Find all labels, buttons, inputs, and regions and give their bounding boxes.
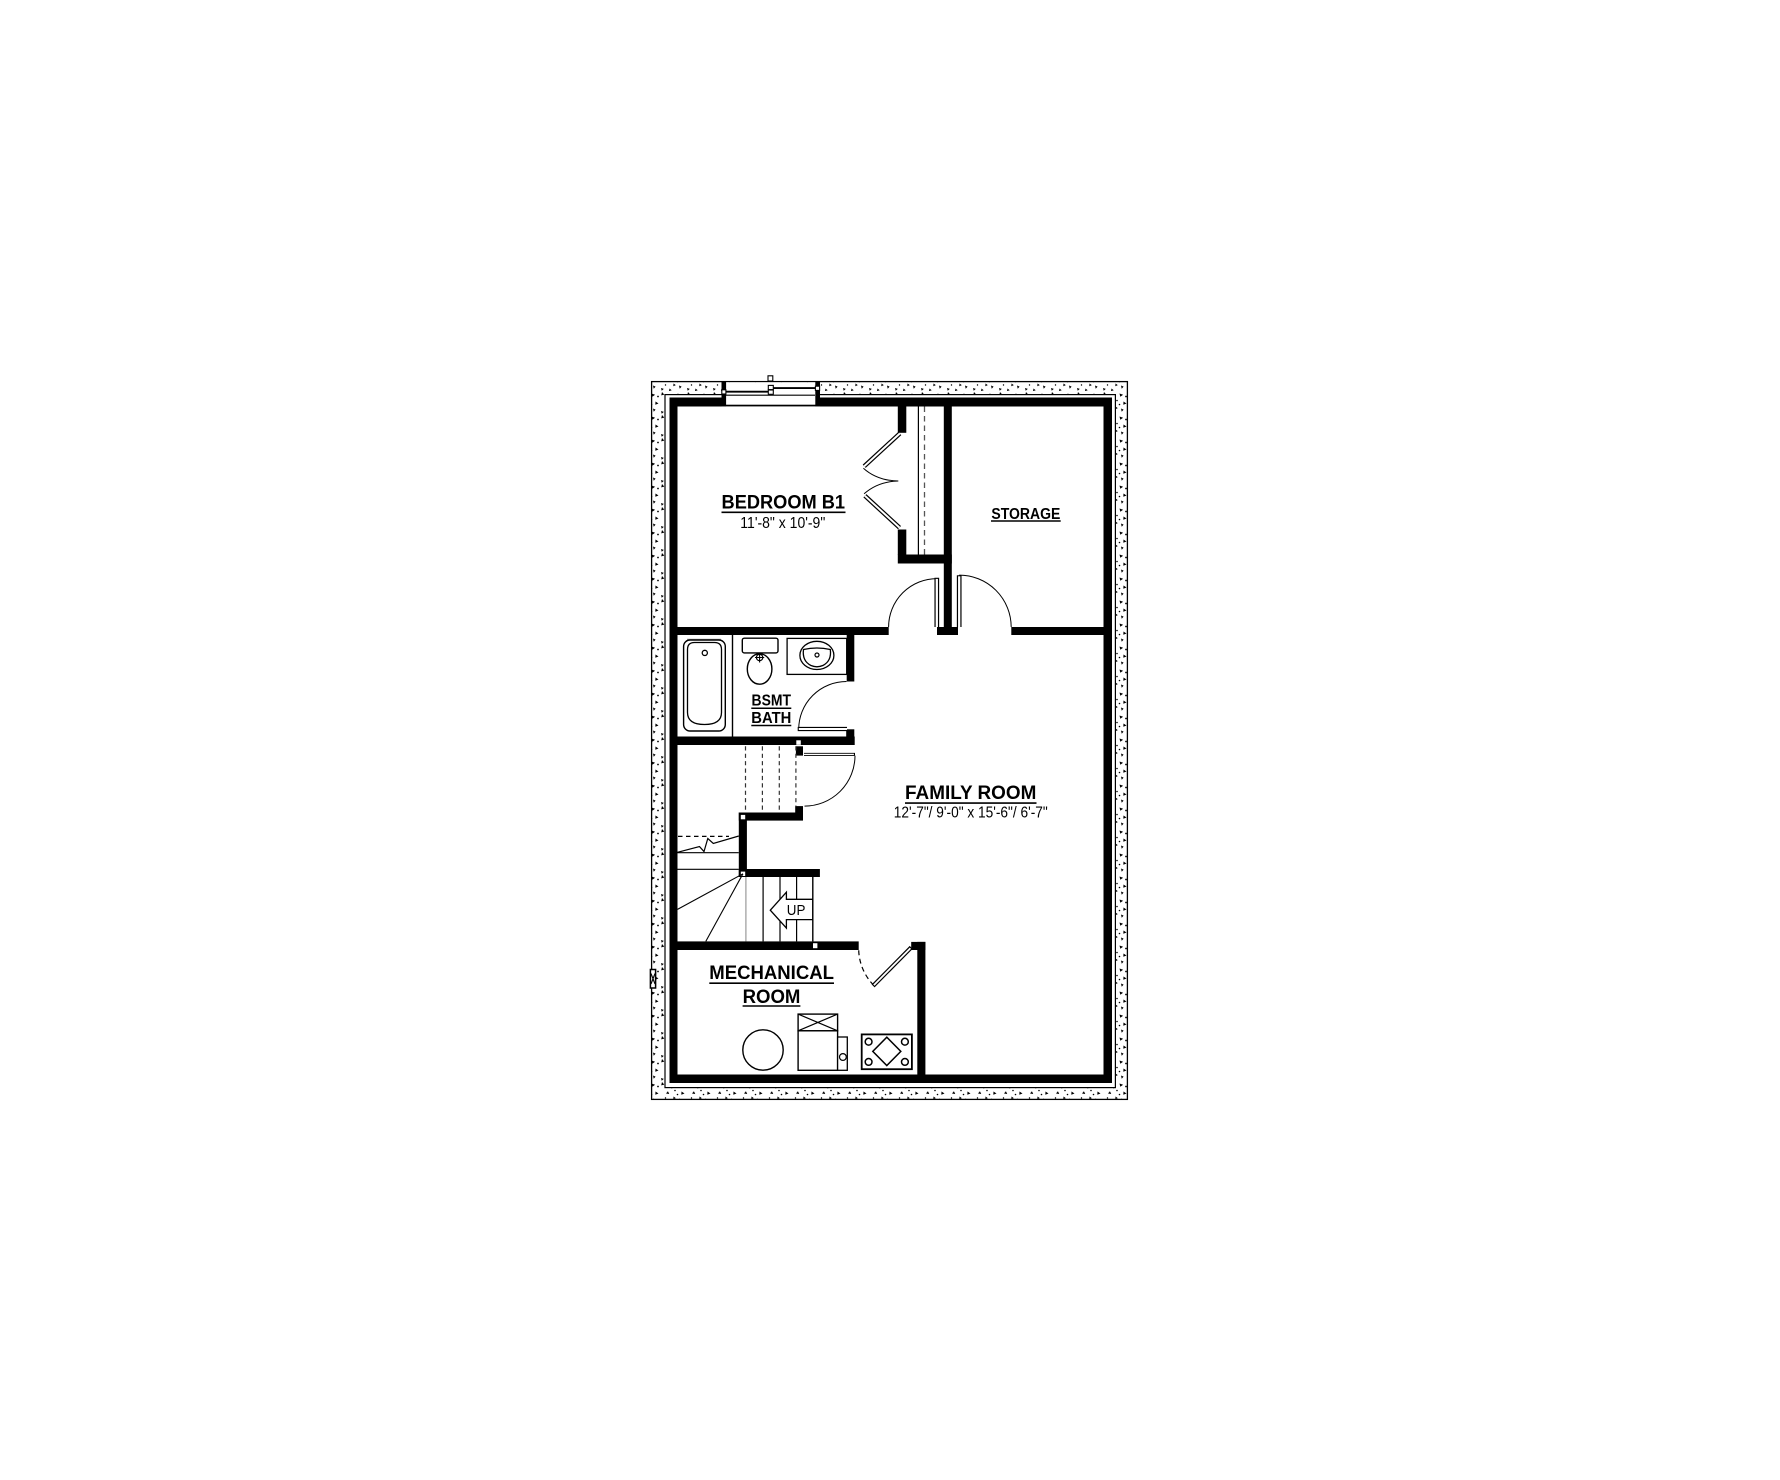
svg-text:ROOM: ROOM [743,987,801,1008]
svg-text:UP: UP [787,903,806,919]
svg-text:FAMILY ROOM: FAMILY ROOM [905,783,1036,804]
svg-text:MECHANICAL: MECHANICAL [709,963,834,984]
svg-text:12'-7"/ 9'-0" x 15'-6"/ 6'-7": 12'-7"/ 9'-0" x 15'-6"/ 6'-7" [894,804,1048,821]
svg-text:BSMT: BSMT [752,693,792,710]
svg-text:BEDROOM B1: BEDROOM B1 [722,493,846,514]
svg-text:11'-8" x 10'-9": 11'-8" x 10'-9" [740,515,825,532]
svg-text:BATH: BATH [751,710,791,727]
